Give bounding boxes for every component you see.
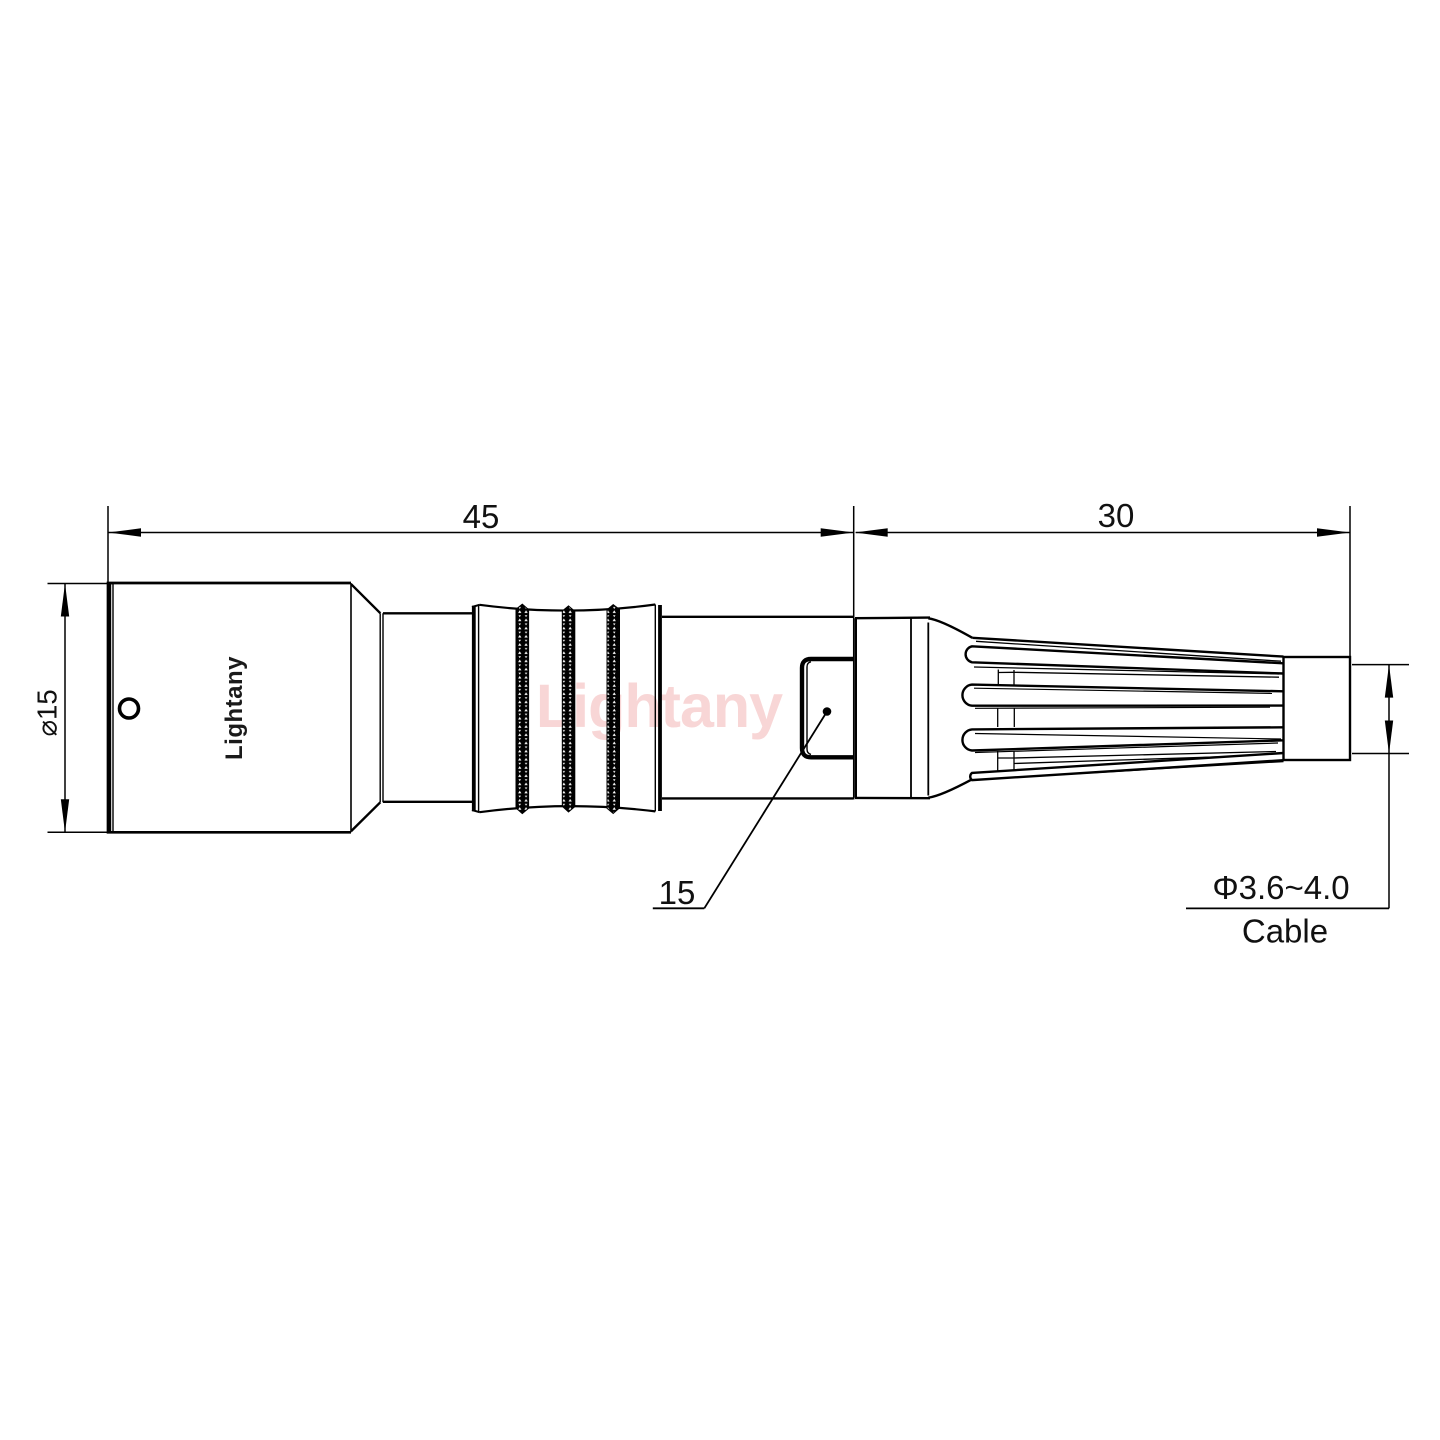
svg-text:Cable: Cable [1242,913,1328,950]
svg-text:45: 45 [463,498,500,535]
svg-text:⌀15: ⌀15 [32,689,63,736]
svg-text:Φ3.6~4.0: Φ3.6~4.0 [1212,869,1349,906]
svg-text:Lightany: Lightany [221,656,248,760]
svg-text:15: 15 [659,874,696,911]
svg-text:30: 30 [1098,497,1135,534]
